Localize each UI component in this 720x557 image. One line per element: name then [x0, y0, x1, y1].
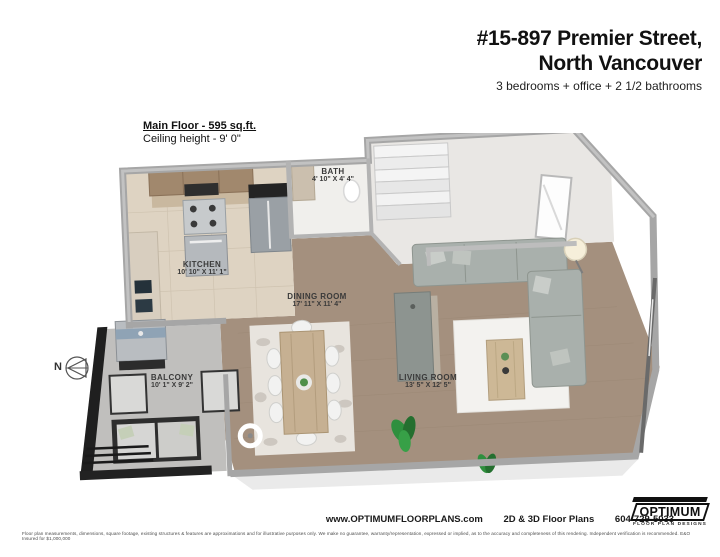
kitchen-island [394, 291, 441, 383]
room-label-dining: DINING ROOM 17' 11" X 11' 4" [287, 292, 347, 308]
floor-plan-page: #15-897 Premier Street, North Vancouver … [0, 0, 720, 557]
coffee-table [486, 339, 525, 401]
compass-label: N [54, 361, 62, 373]
logo-top-bar [632, 497, 708, 502]
room-label-kitchen: KITCHEN 10' 10" X 11' 1" [177, 260, 226, 276]
floor-name-label: Main Floor - 595 sq.ft. [143, 120, 256, 132]
stairs [374, 143, 451, 220]
title-line-2: North Vancouver [477, 51, 702, 76]
balcony-chair-right [201, 370, 239, 412]
balcony-sofa [111, 416, 201, 464]
optimum-logo: OPTIMUM FLOOR PLAN DESIGNS [633, 497, 707, 527]
dining-table [280, 330, 328, 434]
title-line-1: #15-897 Premier Street, [477, 26, 702, 51]
logo-tagline: FLOOR PLAN DESIGNS [633, 522, 707, 527]
logo-box: OPTIMUM [630, 503, 710, 521]
floor-plan-rendering [57, 133, 667, 508]
room-label-bath: BATH 4' 10" X 4' 4" [312, 167, 354, 183]
kitchen-side-counter [127, 232, 161, 323]
property-title: #15-897 Premier Street, North Vancouver … [477, 26, 702, 93]
services-text: 2D & 3D Floor Plans [503, 514, 594, 525]
disclaimer-text: Floor plan measurements, dimensions, squ… [22, 531, 698, 541]
balcony-chair-left [110, 374, 148, 414]
room-label-living: LIVING ROOM 13' 5" X 12' 5" [399, 373, 457, 389]
refrigerator [248, 183, 291, 253]
title-subtitle: 3 bedrooms + office + 2 1/2 bathrooms [477, 79, 702, 93]
microwave [184, 183, 218, 196]
website-text: www.OPTIMUMFLOORPLANS.com [326, 514, 483, 525]
north-arrow-icon [44, 352, 96, 386]
logo-wordmark: OPTIMUM [637, 505, 703, 519]
compass: N [44, 352, 96, 386]
room-label-balcony: BALCONY 10' 1" X 9' 2" [151, 373, 193, 389]
